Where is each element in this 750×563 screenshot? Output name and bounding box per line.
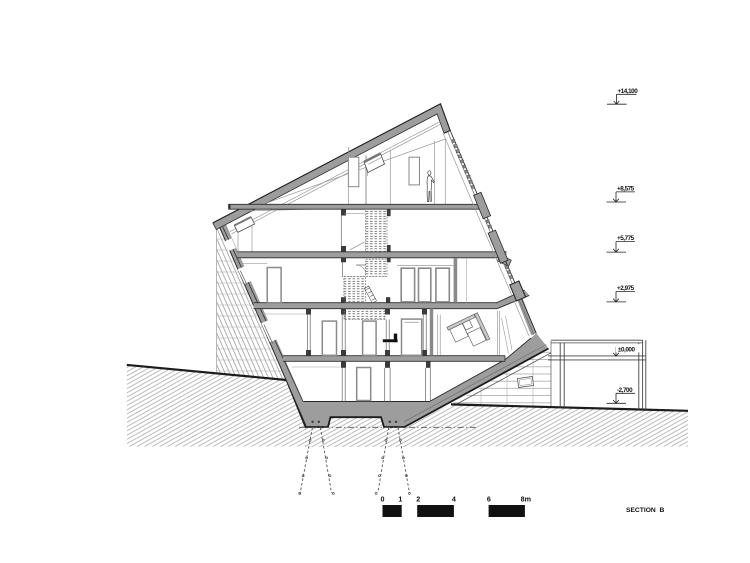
svg-text:8m: 8m: [521, 495, 531, 504]
svg-text:-2,700: -2,700: [617, 387, 633, 394]
svg-text:SECTION B: SECTION B: [626, 507, 664, 514]
svg-text:0: 0: [381, 495, 385, 504]
svg-text:1: 1: [398, 495, 402, 504]
svg-text:4: 4: [452, 495, 456, 504]
svg-text:+14,100: +14,100: [618, 88, 639, 95]
svg-text:+8,575: +8,575: [617, 185, 635, 192]
svg-text:+2,975: +2,975: [617, 285, 635, 292]
svg-text:2: 2: [416, 495, 420, 504]
svg-text:+5,775: +5,775: [617, 235, 635, 242]
svg-text:±0,000: ±0,000: [618, 347, 635, 354]
svg-text:6: 6: [487, 495, 491, 504]
